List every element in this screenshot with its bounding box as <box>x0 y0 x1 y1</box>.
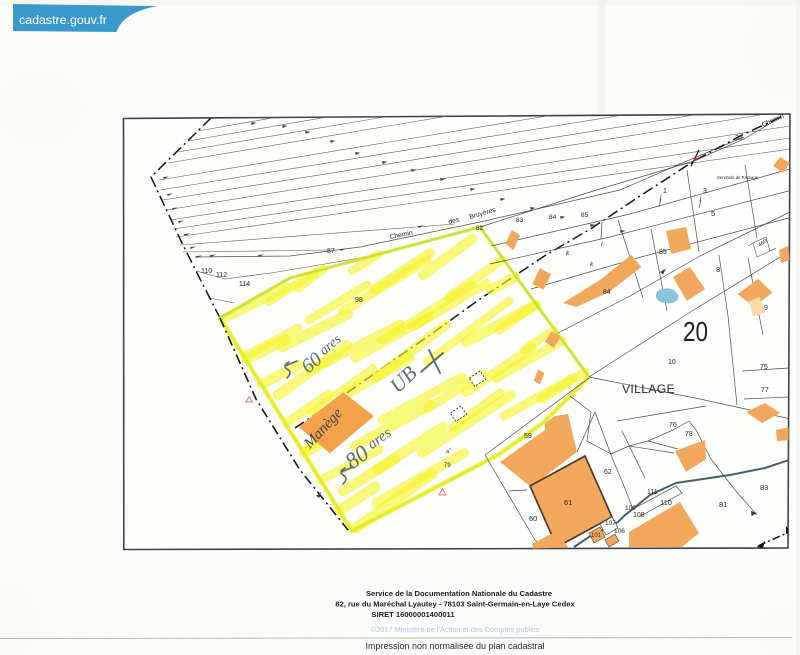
svg-text:107: 107 <box>605 520 616 527</box>
svg-text:83: 83 <box>516 217 524 224</box>
svg-text:84: 84 <box>549 214 557 221</box>
svg-text:33: 33 <box>735 135 743 142</box>
svg-text:114: 114 <box>239 281 250 288</box>
svg-text:cadastre.gouv.fr: cadastre.gouv.fr <box>19 13 107 27</box>
svg-text:87: 87 <box>327 248 335 255</box>
svg-text:112: 112 <box>216 272 227 279</box>
svg-text:°: ° <box>449 448 451 454</box>
svg-text:85: 85 <box>581 212 589 219</box>
svg-text:60: 60 <box>529 514 537 523</box>
svg-text:62: 62 <box>604 469 612 476</box>
svg-text:75: 75 <box>760 364 768 371</box>
svg-text:106: 106 <box>614 528 625 535</box>
svg-text:10: 10 <box>668 359 676 366</box>
svg-text:61: 61 <box>564 498 572 507</box>
svg-text:SIRET 16000001400011: SIRET 16000001400011 <box>371 610 455 619</box>
svg-text:109: 109 <box>625 505 636 512</box>
svg-text:84: 84 <box>603 289 611 296</box>
svg-text:9: 9 <box>764 305 768 312</box>
svg-text:82, rue du Maréchal Lyautey -: 82, rue du Maréchal Lyautey - 78103 Sain… <box>335 600 575 609</box>
svg-text:20: 20 <box>683 316 708 347</box>
svg-text:110: 110 <box>660 498 672 507</box>
svg-text:8: 8 <box>716 265 720 274</box>
svg-text:85: 85 <box>659 249 667 256</box>
svg-text:59: 59 <box>524 433 532 440</box>
svg-text:Impression non normalisée du p: Impression non normalisée du plan cadast… <box>365 641 544 651</box>
svg-text:98: 98 <box>355 297 363 304</box>
svg-text:81: 81 <box>719 500 727 509</box>
svg-text:VILLAGE: VILLAGE <box>622 382 675 396</box>
svg-text:3: 3 <box>703 188 707 195</box>
svg-text:108: 108 <box>633 512 645 519</box>
svg-text:83: 83 <box>760 483 768 492</box>
svg-text:1: 1 <box>663 188 667 195</box>
svg-text:79: 79 <box>444 463 451 469</box>
svg-text:76: 76 <box>669 422 677 429</box>
svg-text:82: 82 <box>476 225 484 232</box>
svg-text:110: 110 <box>201 268 212 275</box>
svg-text:101: 101 <box>591 533 602 539</box>
svg-text:77: 77 <box>761 387 769 394</box>
svg-text:111: 111 <box>647 489 658 496</box>
svg-text:78: 78 <box>685 431 693 438</box>
svg-text:Servitude de Passage: Servitude de Passage <box>717 175 759 180</box>
svg-text:5: 5 <box>711 209 715 218</box>
svg-text:Service de la Documentation Na: Service de la Documentation Nationale du… <box>366 589 552 598</box>
svg-text:©2017 Ministère de l'Action et: ©2017 Ministère de l'Action et des Compt… <box>371 625 540 634</box>
